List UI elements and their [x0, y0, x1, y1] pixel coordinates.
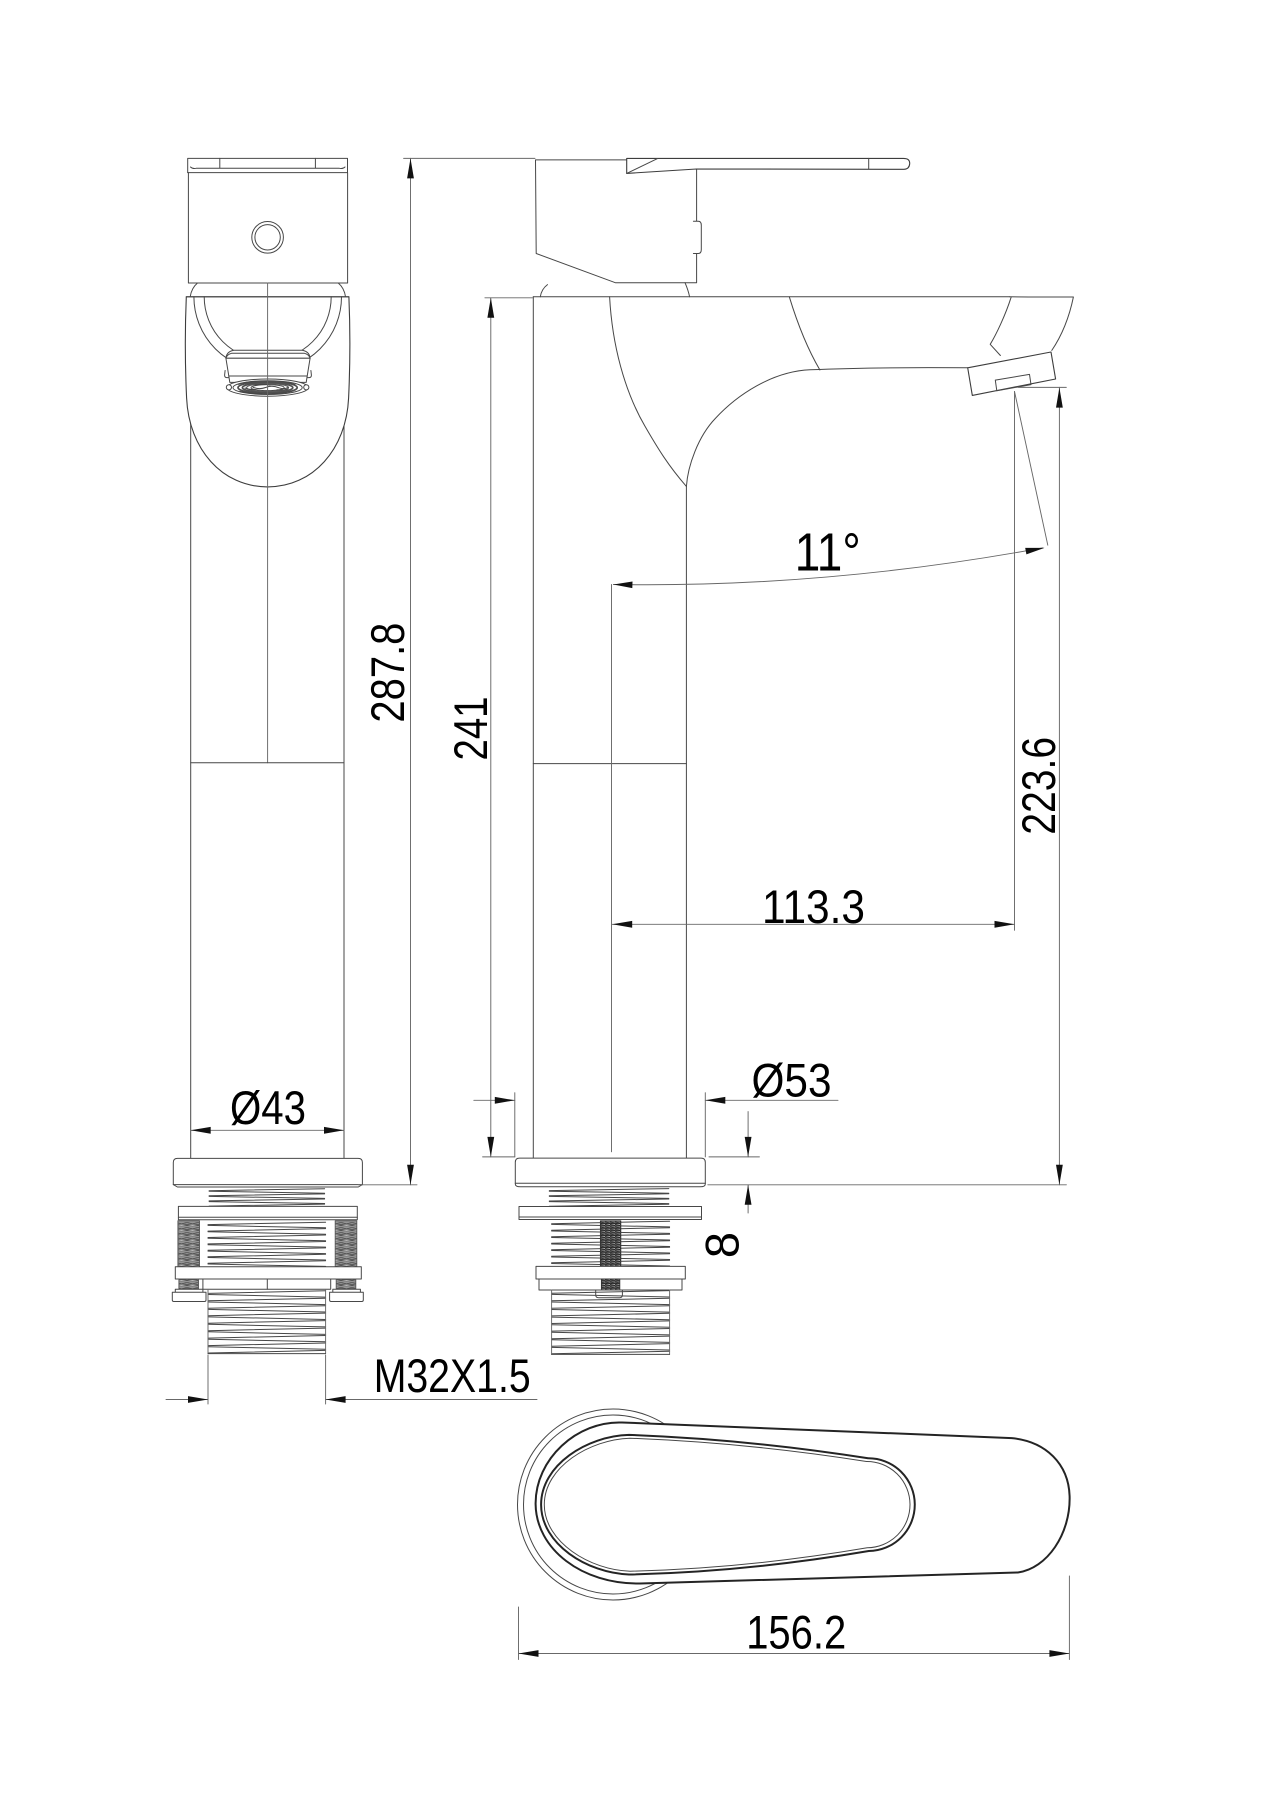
svg-text:287.8: 287.8 — [361, 623, 414, 723]
svg-text:223.6: 223.6 — [1012, 737, 1065, 835]
svg-text:Ø43: Ø43 — [230, 1081, 306, 1134]
svg-text:M32X1.5: M32X1.5 — [374, 1349, 531, 1402]
svg-text:Ø53: Ø53 — [752, 1054, 832, 1107]
svg-text:156.2: 156.2 — [746, 1606, 846, 1659]
svg-text:11°: 11° — [795, 523, 861, 583]
svg-text:8: 8 — [696, 1232, 749, 1258]
svg-text:241: 241 — [444, 697, 497, 761]
svg-text:113.3: 113.3 — [762, 880, 865, 933]
